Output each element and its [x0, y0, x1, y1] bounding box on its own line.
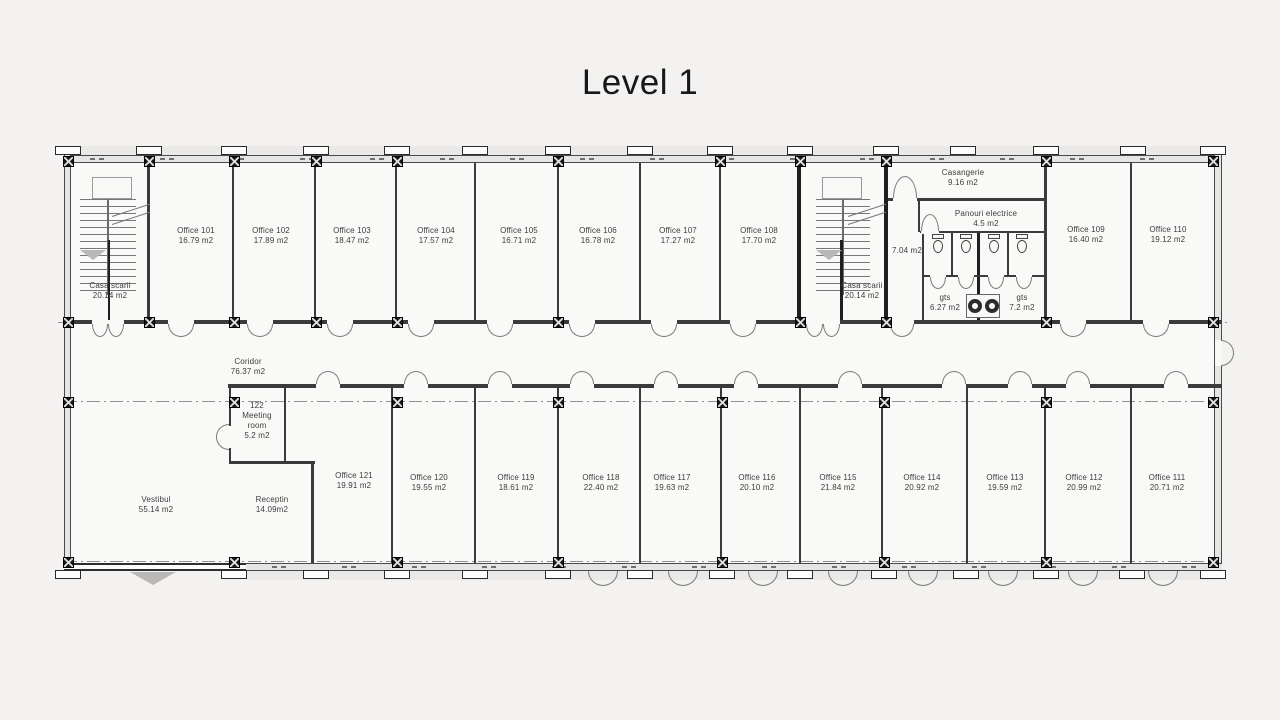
entrance-door — [130, 572, 176, 585]
floor-plan-page: Level 1 — [0, 0, 1280, 720]
room-name: Receptin — [256, 495, 289, 505]
room-area: 16.79 m2 — [177, 236, 215, 246]
room-area: 7.04 m2 — [892, 246, 922, 256]
exit-door-arc — [1221, 340, 1234, 366]
wall-divider — [719, 163, 721, 320]
room-area: 5.2 m2 — [242, 431, 272, 441]
door-opening — [654, 384, 678, 388]
column-marker — [881, 156, 892, 167]
room-area: 19.59 m2 — [986, 483, 1023, 493]
window-door-arc — [748, 571, 778, 586]
pilaster — [384, 146, 410, 155]
pilaster — [1033, 146, 1059, 155]
column-marker — [229, 557, 240, 568]
column-marker — [1041, 156, 1052, 167]
room-name: Office 113 — [986, 473, 1023, 483]
wall-divider — [1130, 163, 1132, 320]
wall-divider — [232, 163, 234, 320]
column-marker — [63, 317, 74, 328]
column-marker — [879, 557, 890, 568]
column-marker — [63, 397, 74, 408]
wall-divider — [314, 163, 316, 320]
pilaster — [136, 146, 162, 155]
column-marker — [1041, 397, 1052, 408]
column-marker — [63, 557, 74, 568]
room-area: 17.27 m2 — [659, 236, 697, 246]
column-marker — [392, 397, 403, 408]
room-label-office-105: Office 105 16.71 m2 — [500, 226, 538, 246]
room-name: Meeting — [242, 411, 272, 421]
column-marker — [879, 397, 890, 408]
door-opening — [316, 384, 340, 388]
room-area: 20.10 m2 — [738, 483, 775, 493]
wall-divider — [966, 388, 968, 563]
door-opening — [838, 384, 862, 388]
room-label-office-116: Office 116 20.10 m2 — [738, 473, 775, 493]
room-label-office-107: Office 107 17.27 m2 — [659, 226, 697, 246]
room-label-gts-left: gts 6.27 m2 — [930, 293, 960, 313]
door-opening — [404, 384, 428, 388]
meeting-door-opening — [229, 426, 231, 448]
window-door-arc — [1068, 571, 1098, 586]
room-name: Casangerie — [942, 168, 984, 178]
room-name: Office 115 — [819, 473, 856, 483]
pilaster — [1200, 146, 1226, 155]
room-label-coridor: Coridor 76.37 m2 — [231, 357, 266, 377]
column-marker — [1041, 557, 1052, 568]
room-name: Office 103 — [333, 226, 371, 236]
panouri-wall-left — [918, 201, 920, 232]
pilaster — [221, 570, 247, 579]
room-label-office-106: Office 106 16.78 m2 — [579, 226, 617, 246]
room-label-office-121: Office 121 19.91 m2 — [335, 471, 373, 491]
column-marker — [553, 317, 564, 328]
pilaster — [545, 146, 571, 155]
wall-divider — [474, 388, 476, 563]
page-title: Level 1 — [0, 63, 1280, 103]
toilet-icon — [1016, 234, 1028, 239]
pilaster — [1200, 570, 1226, 579]
room-label-casa-scarii-2: Casa scarii 20.14 m2 — [841, 281, 882, 301]
room-name: Office 108 — [740, 226, 778, 236]
wall-divider — [720, 388, 722, 563]
room-name: Office 114 — [903, 473, 940, 483]
room-area: 16.78 m2 — [579, 236, 617, 246]
pilaster — [462, 570, 488, 579]
room-area: 7.2 m2 — [1009, 303, 1034, 313]
room-label-receptin: Receptin 14.09m2 — [256, 495, 289, 515]
room-area: 9.16 m2 — [942, 178, 984, 188]
reception-wall-top — [229, 461, 315, 464]
wall-divider — [474, 163, 476, 320]
room-label-casa-scarii-1: Casa scarii 20.14 m2 — [89, 281, 130, 301]
room-name: Office 112 — [1065, 473, 1102, 483]
wall-divider — [881, 388, 883, 563]
room-label-office-118: Office 118 22.40 m2 — [582, 473, 619, 493]
column-marker — [795, 317, 806, 328]
window-door-arc — [588, 571, 618, 586]
room-area: 18.47 m2 — [333, 236, 371, 246]
pilaster — [1119, 570, 1145, 579]
room-label-meeting-room-122: 122 Meeting room 5.2 m2 — [242, 401, 272, 441]
window-band-left — [64, 155, 71, 571]
room-label-office-102: Office 102 17.89 m2 — [252, 226, 290, 246]
room-name: Office 111 — [1149, 473, 1186, 483]
room-area: 17.89 m2 — [252, 236, 290, 246]
pilaster — [303, 146, 329, 155]
room-name: Office 104 — [417, 226, 455, 236]
window-door-arc — [828, 571, 858, 586]
column-marker — [717, 557, 728, 568]
pilaster — [871, 570, 897, 579]
room-label-office-119: Office 119 18.61 m2 — [497, 473, 534, 493]
pilaster — [787, 570, 813, 579]
room-name: Office 107 — [659, 226, 697, 236]
room-label-office-108: Office 108 17.70 m2 — [740, 226, 778, 246]
pilaster — [55, 146, 81, 155]
column-marker — [144, 156, 155, 167]
pilaster — [462, 146, 488, 155]
room-name: Office 120 — [410, 473, 448, 483]
room-name: Vestibul — [139, 495, 174, 505]
room-area: 17.57 m2 — [417, 236, 455, 246]
door-opening — [734, 384, 758, 388]
wall-divider — [1130, 388, 1132, 563]
window-door-arc — [988, 571, 1018, 586]
door-opening — [1164, 384, 1188, 388]
room-area: 19.12 m2 — [1149, 235, 1186, 245]
sink-icon — [985, 299, 999, 313]
room-label-hol-tehnic: 7.04 m2 — [892, 246, 922, 256]
column-marker — [1041, 317, 1052, 328]
pilaster — [953, 570, 979, 579]
stair-landing — [92, 177, 132, 199]
room-number: 122 — [242, 401, 272, 411]
pilaster — [950, 146, 976, 155]
wall-divider — [1044, 163, 1047, 320]
room-label-office-114: Office 114 20.92 m2 — [903, 473, 940, 493]
pilaster — [545, 570, 571, 579]
room-name: Coridor — [231, 357, 266, 367]
pilaster — [707, 146, 733, 155]
column-marker — [311, 317, 322, 328]
pilaster — [55, 570, 81, 579]
toilet-icon — [932, 234, 944, 239]
pilaster — [1033, 570, 1059, 579]
door-opening — [942, 384, 966, 388]
pilaster — [1120, 146, 1146, 155]
room-name: gts — [930, 293, 960, 303]
pilaster — [221, 146, 247, 155]
room-name: Office 106 — [579, 226, 617, 236]
column-marker — [229, 317, 240, 328]
room-area: 19.91 m2 — [335, 481, 373, 491]
room-name: Casa scarii — [89, 281, 130, 291]
room-label-gts-right: gts 7.2 m2 — [1009, 293, 1034, 313]
room-label-office-110: Office 110 19.12 m2 — [1149, 225, 1186, 245]
room-area: 14.09m2 — [256, 505, 289, 515]
stair-flight-wall — [840, 240, 843, 320]
room-area: 17.70 m2 — [740, 236, 778, 246]
room-area: 21.84 m2 — [819, 483, 856, 493]
window-door-arc — [668, 571, 698, 586]
room-area: 18.61 m2 — [497, 483, 534, 493]
room-area: 20.14 m2 — [841, 291, 882, 301]
column-marker — [392, 557, 403, 568]
room-label-office-117: Office 117 19.63 m2 — [653, 473, 690, 493]
column-marker — [553, 397, 564, 408]
door-opening — [1066, 384, 1090, 388]
pilaster — [873, 146, 899, 155]
room-name: Casa scarii — [841, 281, 882, 291]
stairwell2-wall-left — [797, 163, 801, 320]
room-label-panouri-electrice: Panouri electrice 4.5 m2 — [955, 209, 1017, 229]
stair-flight-wall — [108, 240, 110, 320]
pilaster — [627, 146, 653, 155]
room-label-office-111: Office 111 20.71 m2 — [1149, 473, 1186, 493]
room-name: room — [242, 421, 272, 431]
toilet-stall-divider — [1007, 233, 1009, 277]
room-label-casangerie: Casangerie 9.16 m2 — [942, 168, 984, 188]
wall-divider — [147, 163, 150, 320]
pilaster — [709, 570, 735, 579]
pilaster — [384, 570, 410, 579]
column-marker — [553, 156, 564, 167]
column-marker — [1208, 156, 1219, 167]
stairwell2-wall-right — [884, 163, 888, 320]
room-area: 20.92 m2 — [903, 483, 940, 493]
room-name: Office 119 — [497, 473, 534, 483]
window-door-arc — [908, 571, 938, 586]
wall-divider — [1044, 388, 1046, 563]
room-area: 16.40 m2 — [1067, 235, 1105, 245]
column-marker — [229, 397, 240, 408]
column-marker — [392, 156, 403, 167]
column-marker — [144, 317, 155, 328]
wall-divider — [639, 163, 641, 320]
toilet-icon — [988, 234, 1000, 239]
column-marker — [715, 156, 726, 167]
column-marker — [63, 156, 74, 167]
door-opening — [1008, 384, 1032, 388]
column-marker — [1208, 397, 1219, 408]
column-marker — [881, 317, 892, 328]
room-area: 20.99 m2 — [1065, 483, 1102, 493]
toilet-stall-divider — [951, 233, 953, 277]
stair-treads — [816, 199, 842, 295]
column-marker — [229, 156, 240, 167]
room-label-office-101: Office 101 16.79 m2 — [177, 226, 215, 246]
door-opening — [570, 384, 594, 388]
room-label-vestibul: Vestibul 55.14 m2 — [139, 495, 174, 515]
window-door-arc — [1148, 571, 1178, 586]
stair-landing — [822, 177, 862, 199]
room-label-office-120: Office 120 19.55 m2 — [410, 473, 448, 493]
column-marker — [1208, 557, 1219, 568]
room-area: 55.14 m2 — [139, 505, 174, 515]
room-name: Office 101 — [177, 226, 215, 236]
room-name: gts — [1009, 293, 1034, 303]
column-marker — [795, 156, 806, 167]
room-area: 19.63 m2 — [653, 483, 690, 493]
room-area: 20.14 m2 — [89, 291, 130, 301]
room-area: 16.71 m2 — [500, 236, 538, 246]
room-label-office-112: Office 112 20.99 m2 — [1065, 473, 1102, 493]
room-label-office-113: Office 113 19.59 m2 — [986, 473, 1023, 493]
sink-icon — [968, 299, 982, 313]
toilet-icon — [960, 234, 972, 239]
room-name: Office 102 — [252, 226, 290, 236]
room-name: Office 116 — [738, 473, 775, 483]
room-area: 4.5 m2 — [955, 219, 1017, 229]
column-marker — [311, 156, 322, 167]
wall-divider — [391, 388, 393, 563]
room-label-office-103: Office 103 18.47 m2 — [333, 226, 371, 246]
wall-divider — [799, 388, 801, 563]
room-area: 76.37 m2 — [231, 367, 266, 377]
pilaster — [627, 570, 653, 579]
reception-wall-right — [311, 464, 314, 563]
column-marker — [553, 557, 564, 568]
column-marker — [392, 317, 403, 328]
room-name: Office 118 — [582, 473, 619, 483]
room-area: 6.27 m2 — [930, 303, 960, 313]
room-label-office-104: Office 104 17.57 m2 — [417, 226, 455, 246]
room-name: Office 121 — [335, 471, 373, 481]
room-name: Office 117 — [653, 473, 690, 483]
wall-divider — [557, 388, 559, 563]
room-label-office-115: Office 115 21.84 m2 — [819, 473, 856, 493]
room-area: 20.71 m2 — [1149, 483, 1186, 493]
door-opening — [488, 384, 512, 388]
pilaster — [787, 146, 813, 155]
room-name: Office 105 — [500, 226, 538, 236]
wall-bottom-left — [64, 563, 246, 571]
room-name: Office 109 — [1067, 225, 1105, 235]
room-name: Office 110 — [1149, 225, 1186, 235]
pilaster — [303, 570, 329, 579]
column-marker — [717, 397, 728, 408]
room-area: 22.40 m2 — [582, 483, 619, 493]
column-marker — [1208, 317, 1219, 328]
wall-divider — [639, 388, 641, 563]
meeting-room-wall-right — [284, 388, 286, 463]
wall-divider — [557, 163, 559, 320]
room-area: 19.55 m2 — [410, 483, 448, 493]
room-label-office-109: Office 109 16.40 m2 — [1067, 225, 1105, 245]
room-name: Panouri electrice — [955, 209, 1017, 219]
wall-divider — [395, 163, 397, 320]
